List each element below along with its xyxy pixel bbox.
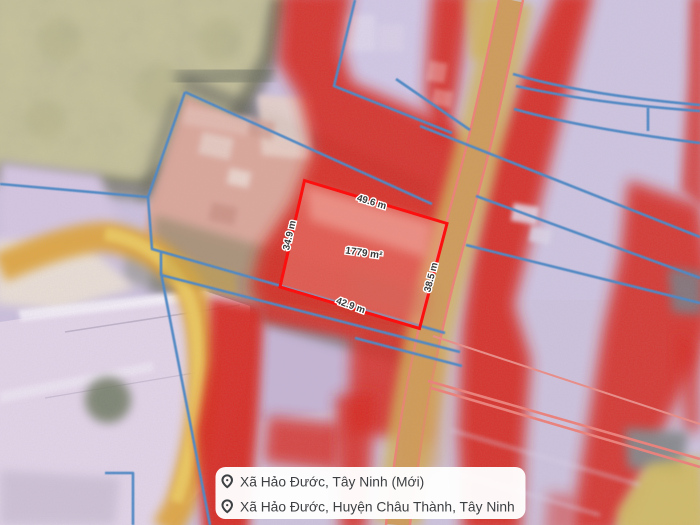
svg-text:Xã Hảo Đước, Huyện Châu Thành,: Xã Hảo Đước, Huyện Châu Thành, Tây Ninh xyxy=(240,500,515,515)
svg-text:Xã Hảo Đước, Tây Ninh (Mới): Xã Hảo Đước, Tây Ninh (Mới) xyxy=(240,475,424,490)
